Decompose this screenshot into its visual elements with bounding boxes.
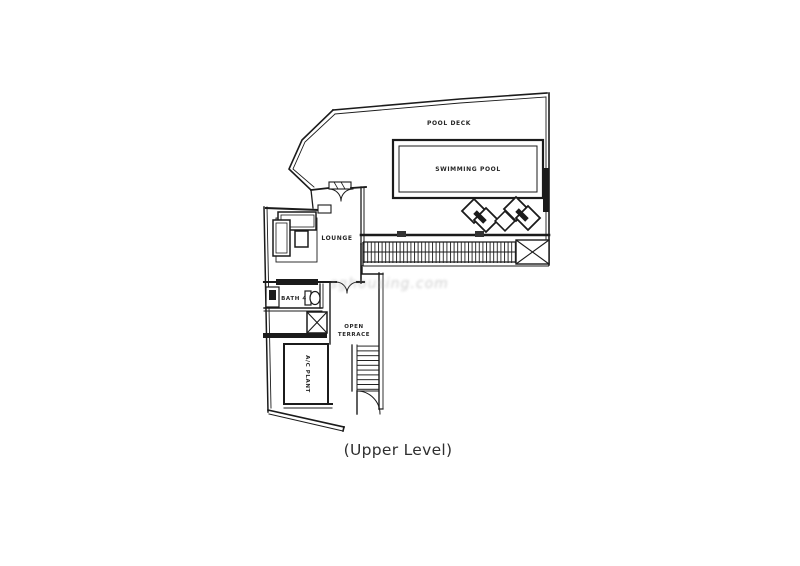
deck-loungers xyxy=(462,197,540,232)
floor-plan-drawing: POOL DECK SWIMMING POOL xyxy=(0,0,800,566)
level-caption: (Upper Level) xyxy=(344,441,453,459)
floor-plan-page: POOL DECK SWIMMING POOL xyxy=(0,0,800,566)
railing-post xyxy=(475,231,484,237)
open-terrace-label-line1: OPEN xyxy=(344,324,363,330)
ac-plant-label: A/C PLANT xyxy=(304,355,310,393)
service-shaft xyxy=(263,312,327,338)
open-terrace-label-line2: TERRACE xyxy=(338,332,370,338)
planter-x-box xyxy=(516,240,549,264)
coffee-table xyxy=(295,231,308,247)
pool-deck-label: POOL DECK xyxy=(427,120,471,127)
railing-post xyxy=(397,231,406,237)
wall-fill xyxy=(263,333,327,338)
toilet-fixture xyxy=(305,291,320,305)
stair-door-swing xyxy=(357,391,380,414)
balcony-railing xyxy=(363,240,549,266)
wall-fill xyxy=(276,279,318,285)
lounge-label: LOUNGE xyxy=(321,235,352,242)
swimming-pool-label: SWIMMING POOL xyxy=(435,166,501,173)
lower-outer-walls xyxy=(268,404,344,431)
bath4-label: BATH 4 xyxy=(281,296,307,302)
staircase xyxy=(352,345,380,414)
lounge-sofa-set xyxy=(273,212,317,262)
vanity-fixture xyxy=(266,287,279,307)
